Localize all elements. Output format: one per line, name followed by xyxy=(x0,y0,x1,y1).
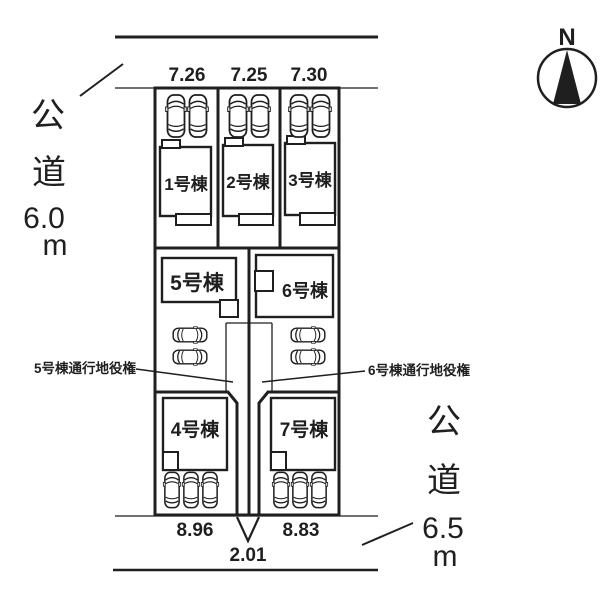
road-label-right: 公 道 6.5 m xyxy=(422,403,464,573)
car-icon xyxy=(289,95,310,137)
dimension-bottom-center: 2.01 xyxy=(230,545,267,566)
car-icon xyxy=(311,95,332,137)
car-icon xyxy=(163,472,180,507)
building-6-step xyxy=(255,271,273,291)
building-5-label: 5号棟 xyxy=(170,271,225,295)
car-icon xyxy=(201,472,218,507)
dimension-top-2: 7.25 xyxy=(231,65,268,86)
dimension-bottom-right: 8.83 xyxy=(283,520,320,541)
car-icon xyxy=(173,349,207,365)
road-right-kanji-1: 公 xyxy=(427,403,461,441)
road-label-left: 公 道 6.0 m xyxy=(23,97,67,262)
road-right-unit: m xyxy=(433,540,458,573)
building-1-porch xyxy=(162,140,180,148)
site-plan-page: 1号棟 2号棟 3号棟 4号棟 5号棟 6号棟 7号棟 7.26 7.25 7.… xyxy=(0,0,600,600)
building-4-label: 4号棟 xyxy=(171,418,221,441)
car-icon xyxy=(291,327,325,343)
dimension-bottom-left: 8.96 xyxy=(177,520,214,541)
dimension-top-1: 7.26 xyxy=(169,65,206,86)
building-2-label: 2号棟 xyxy=(226,172,270,192)
building-2-step xyxy=(239,214,273,225)
compass-needle-icon xyxy=(553,50,581,104)
bottom-road-leader-tick xyxy=(362,523,413,545)
building-4-step xyxy=(163,452,178,470)
building-1-step xyxy=(176,214,211,225)
building-2-porch xyxy=(225,138,243,146)
top-road-leader-tick xyxy=(80,64,123,96)
building-3-label: 3号棟 xyxy=(288,170,332,190)
car-icon xyxy=(250,95,271,137)
road-right-kanji-2: 道 xyxy=(427,462,461,500)
car-icon xyxy=(310,472,327,507)
dimension-top-3: 7.30 xyxy=(291,65,328,86)
car-icon xyxy=(182,472,199,507)
car-icon xyxy=(188,95,209,137)
road-left-kanji-2: 道 xyxy=(32,154,66,192)
north-label: N xyxy=(558,24,575,51)
building-1-label: 1号棟 xyxy=(164,174,208,194)
car-icon xyxy=(272,472,289,507)
easement-label-left: 5号棟通行地役権 xyxy=(34,360,137,376)
building-6-label: 6号棟 xyxy=(282,280,329,301)
easement-label-right: 6号棟通行地役権 xyxy=(368,362,471,378)
car-icon xyxy=(173,327,207,343)
road-left-unit: m xyxy=(43,229,68,262)
car-icon xyxy=(166,95,187,137)
building-3-step xyxy=(300,213,335,225)
car-icon xyxy=(228,95,249,137)
road-left-kanji-1: 公 xyxy=(31,97,65,135)
north-compass: N xyxy=(538,24,596,107)
car-icon xyxy=(291,472,308,507)
car-icon xyxy=(291,349,325,365)
driveway-opening-marker xyxy=(237,517,259,541)
building-5-step xyxy=(220,300,238,317)
building-7-label: 7号棟 xyxy=(280,418,330,441)
building-7-step xyxy=(271,452,286,470)
site-plan-drawing: 1号棟 2号棟 3号棟 4号棟 5号棟 6号棟 7号棟 7.26 7.25 7.… xyxy=(0,0,600,600)
